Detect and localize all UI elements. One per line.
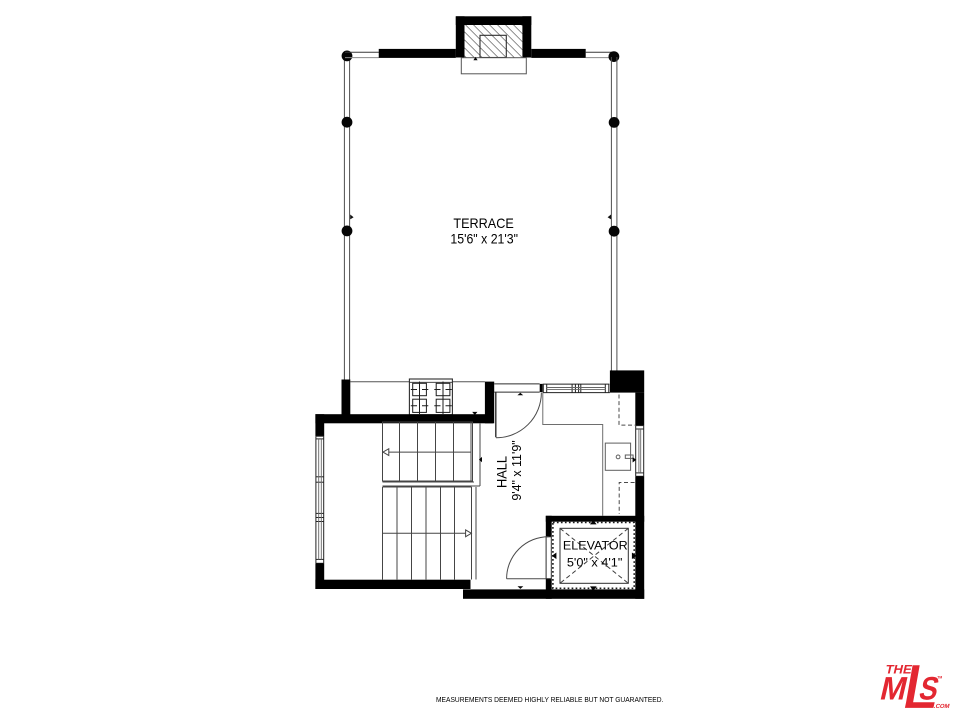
svg-text:TERRACE: TERRACE [453,215,513,231]
svg-text:ELEVATOR: ELEVATOR [563,538,628,552]
svg-text:9'4" x 11'9": 9'4" x 11'9" [509,440,524,501]
svg-text:5'0" x 4'1": 5'0" x 4'1" [567,555,623,569]
svg-text:HALL: HALL [494,456,510,488]
svg-text:MEASUREMENTS DEEMED HIGHLY REL: MEASUREMENTS DEEMED HIGHLY RELIABLE BUT … [436,695,663,704]
svg-text:.COM: .COM [933,704,950,710]
svg-text:TM: TM [937,675,942,679]
svg-text:15'6" x 21'3": 15'6" x 21'3" [450,231,518,247]
